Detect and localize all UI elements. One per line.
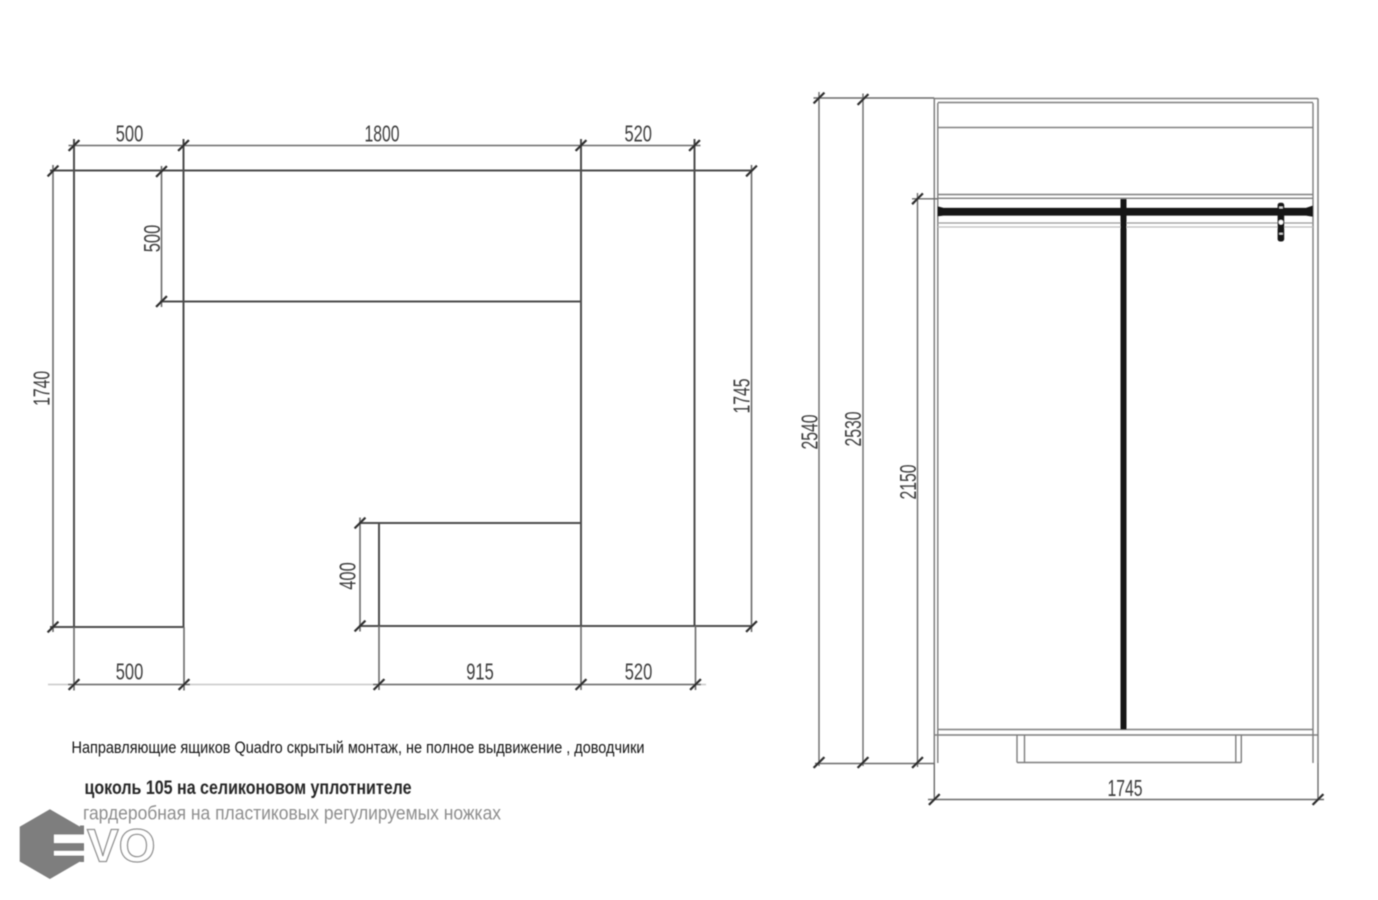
svg-text:1800: 1800	[365, 120, 400, 146]
svg-text:500: 500	[116, 121, 144, 147]
svg-text:2150: 2150	[895, 465, 921, 500]
svg-text:1745: 1745	[728, 379, 754, 414]
svg-text:1745: 1745	[1108, 775, 1143, 801]
svg-text:VO: VO	[87, 820, 156, 872]
svg-text:915: 915	[466, 659, 494, 685]
svg-text:520: 520	[624, 120, 652, 146]
svg-text:500: 500	[139, 225, 165, 253]
svg-text:1740: 1740	[29, 371, 55, 406]
svg-text:520: 520	[625, 659, 653, 685]
svg-text:цоколь 105 на селиконовом упло: цоколь 105 на селиконовом уплотнителе	[85, 778, 412, 799]
svg-text:400: 400	[334, 562, 360, 590]
svg-text:500: 500	[116, 659, 144, 685]
svg-text:Направляющие ящиков Quadro скр: Направляющие ящиков Quadro скрытый монта…	[72, 739, 645, 757]
svg-text:2530: 2530	[840, 412, 866, 447]
svg-text:2540: 2540	[797, 415, 823, 450]
